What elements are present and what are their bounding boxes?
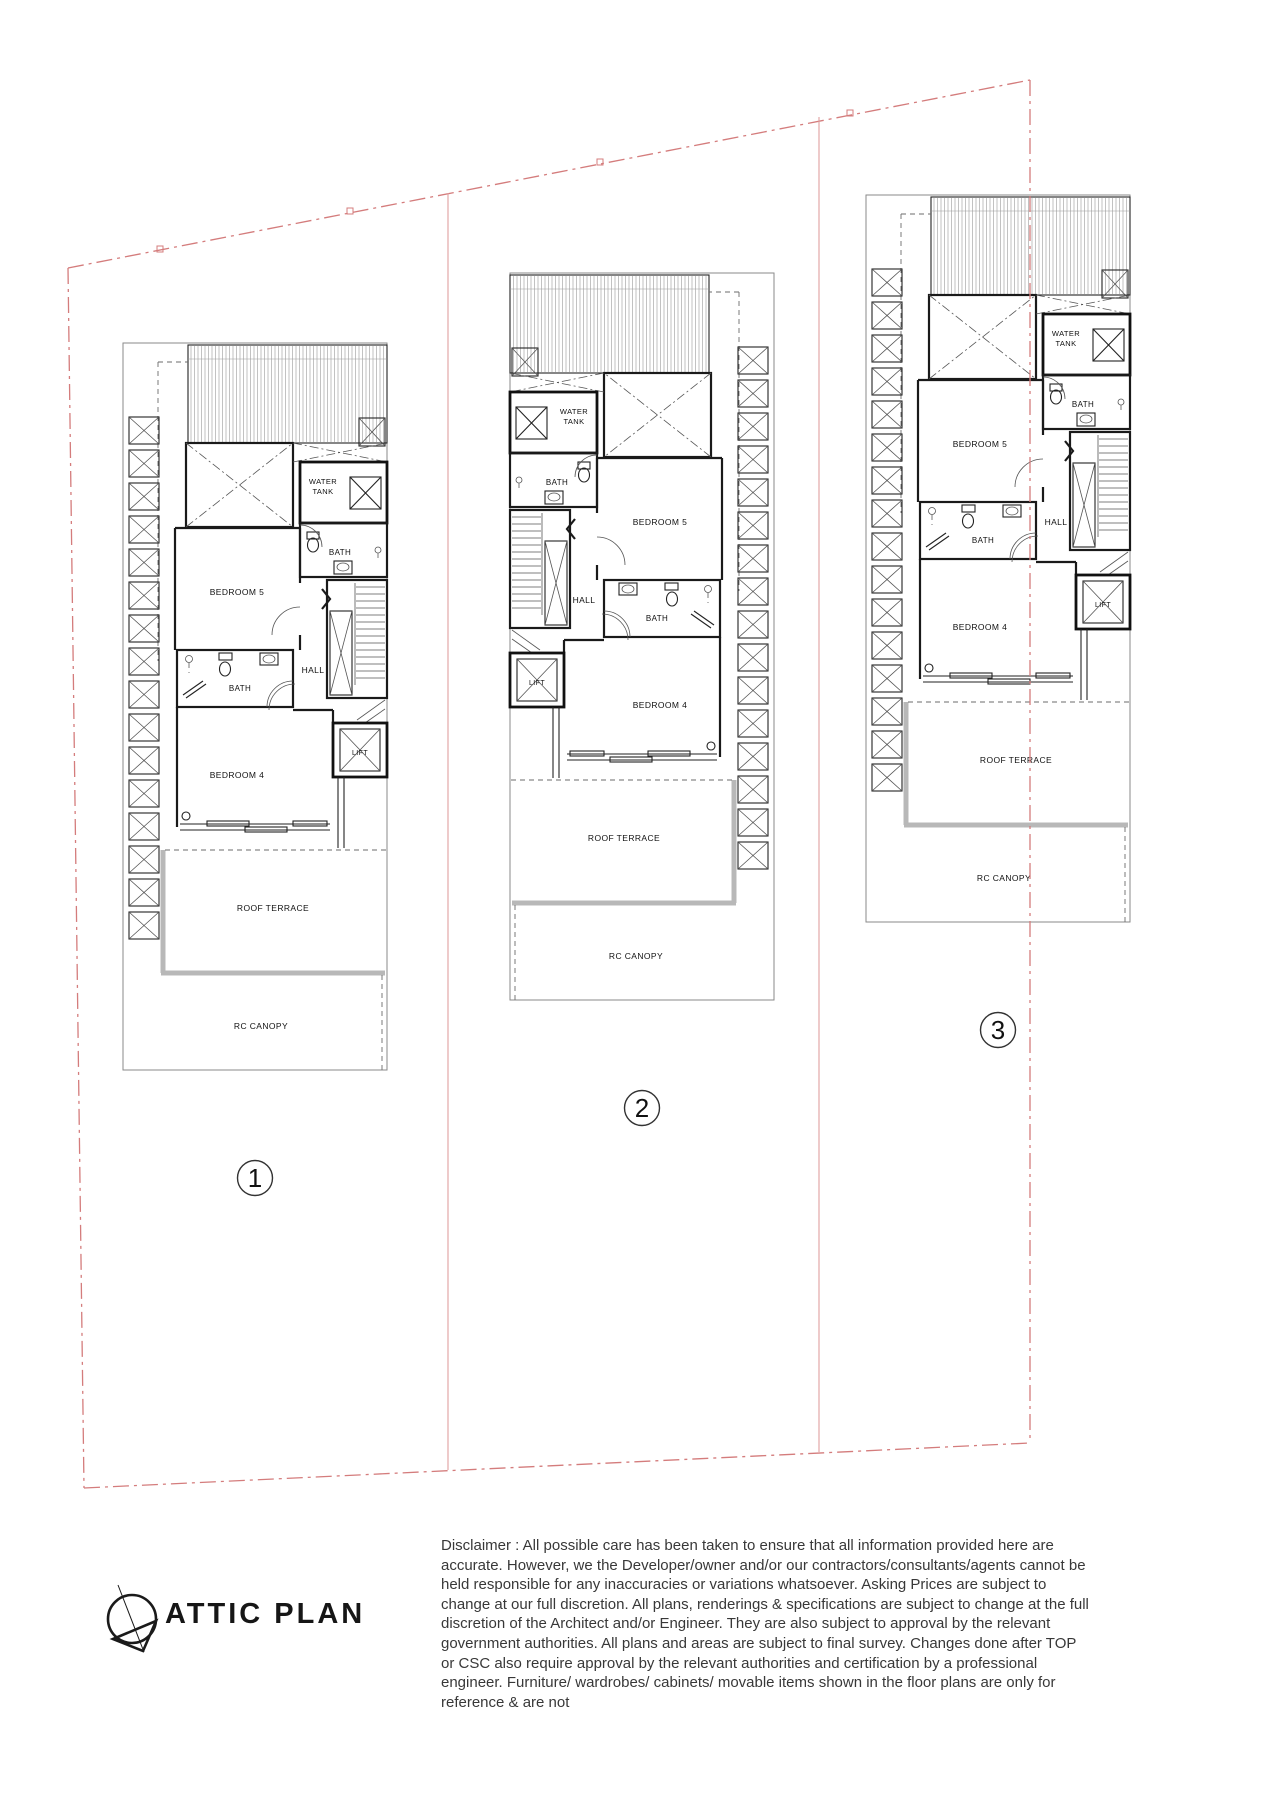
room-label-bedroom-5: BEDROOM 5 xyxy=(953,439,1008,449)
unit-1-floor-plan: WATERTANKBATHBEDROOM 5HALLBATHBEDROOM 4L… xyxy=(123,343,387,1070)
room-label-water-tank: WATER xyxy=(1052,329,1080,338)
room-label-water-tank: TANK xyxy=(1055,339,1076,348)
unit-number-label: 3 xyxy=(991,1015,1005,1045)
room-label-bath-upper: BATH xyxy=(329,548,351,557)
room-label-bath-lower: BATH xyxy=(229,684,251,693)
room-label-bedroom-5: BEDROOM 5 xyxy=(210,587,265,597)
disclaimer-text: Disclaimer : All possible care has been … xyxy=(441,1536,1091,1712)
room-label-bedroom-4: BEDROOM 4 xyxy=(210,770,265,780)
unit-number-badge-1: 1 xyxy=(238,1161,273,1196)
room-label-lift: LIFT xyxy=(529,680,545,687)
room-label-water-tank: WATER xyxy=(309,477,337,486)
room-label-rc-canopy: RC CANOPY xyxy=(977,873,1031,883)
room-label-hall: HALL xyxy=(573,595,596,605)
room-label-roof-terrace: ROOF TERRACE xyxy=(588,833,660,843)
room-label-water-tank: TANK xyxy=(312,487,333,496)
unit-3-floor-plan: WATERTANKBATHBEDROOM 5HALLBATHBEDROOM 4L… xyxy=(866,195,1130,922)
unit-number-badge-3: 3 xyxy=(981,1013,1016,1048)
room-label-roof-terrace: ROOF TERRACE xyxy=(980,755,1052,765)
unit-number-badge-2: 2 xyxy=(625,1091,660,1126)
room-label-rc-canopy: RC CANOPY xyxy=(609,951,663,961)
room-label-bedroom-4: BEDROOM 4 xyxy=(633,700,688,710)
unit-number-label: 2 xyxy=(635,1093,649,1123)
page-title: ATTIC PLAN xyxy=(165,1598,365,1631)
unit-number-label: 1 xyxy=(248,1163,262,1193)
room-label-bath-upper: BATH xyxy=(1072,400,1094,409)
site-plan-drawing: WATERTANKBATHBEDROOM 5HALLBATHBEDROOM 4L… xyxy=(0,0,1273,1800)
room-label-bath-upper: BATH xyxy=(546,478,568,487)
title-block-logo xyxy=(108,1585,156,1652)
room-label-water-tank: WATER xyxy=(560,407,588,416)
room-label-bedroom-4: BEDROOM 4 xyxy=(953,622,1008,632)
room-label-bedroom-5: BEDROOM 5 xyxy=(633,517,688,527)
unit-2-floor-plan: WATERTANKBATHBEDROOM 5HALLBATHBEDROOM 4L… xyxy=(510,273,774,1000)
room-label-bath-lower: BATH xyxy=(972,536,994,545)
room-label-hall: HALL xyxy=(302,665,325,675)
room-label-water-tank: TANK xyxy=(563,417,584,426)
room-label-lift: LIFT xyxy=(352,750,368,757)
room-label-rc-canopy: RC CANOPY xyxy=(234,1021,288,1031)
room-label-lift: LIFT xyxy=(1095,602,1111,609)
site-boundary-lines xyxy=(68,80,1030,1488)
attic-plan-page: WATERTANKBATHBEDROOM 5HALLBATHBEDROOM 4L… xyxy=(0,0,1273,1800)
room-label-bath-lower: BATH xyxy=(646,614,668,623)
room-label-hall: HALL xyxy=(1045,517,1068,527)
room-label-roof-terrace: ROOF TERRACE xyxy=(237,903,309,913)
